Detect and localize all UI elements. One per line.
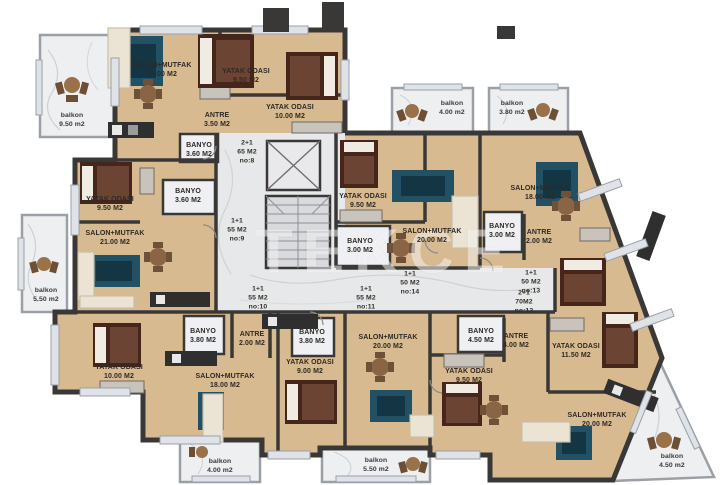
room-label: YATAK ODASI9.00 M2 bbox=[286, 358, 334, 376]
room-label: SALON+MUTFAK20.00 M2 bbox=[568, 411, 627, 429]
room-label: SALON+MUTFAK18.00 M2 bbox=[196, 372, 255, 390]
room-label: YATAK ODASI9.50 M2 bbox=[339, 192, 387, 210]
unit-label: 1+150 M2no:14 bbox=[400, 271, 419, 298]
balcony-label: balkon4.00 m2 bbox=[439, 100, 465, 118]
room-label: SALON+MUTFAK20.00 M2 bbox=[403, 227, 462, 245]
room-label: ANTRE2.00 M2 bbox=[526, 228, 552, 246]
unit-label: 1+155 M2no:11 bbox=[356, 286, 375, 313]
unit-label: 1+155 M2no:9 bbox=[227, 218, 246, 245]
unit-label: 2+165 M2no:8 bbox=[237, 140, 256, 167]
room-label: BANYO3.60 M2 bbox=[175, 187, 201, 205]
room-label: ANTRE2.00 M2 bbox=[239, 330, 265, 348]
elevator bbox=[267, 141, 320, 190]
room-label: BANYO3.80 M2 bbox=[299, 328, 325, 346]
room-label: BANYO3.60 M2 bbox=[186, 141, 212, 159]
balcony-label: balkon3.80 m2 bbox=[499, 100, 525, 118]
unit-label: 1+150 M2no:13 bbox=[521, 270, 540, 297]
room-label: YATAK ODASI9.50 M2 bbox=[445, 367, 493, 385]
balcony-label: balkon5.50 m2 bbox=[33, 287, 59, 305]
room-label: ANTRE4.00 M2 bbox=[503, 332, 529, 350]
room-label: SALON+MUTFAK18.00 M2 bbox=[133, 61, 192, 79]
staircase bbox=[266, 196, 330, 268]
balcony-label: balkon4.50 m2 bbox=[659, 453, 685, 471]
room-label: SALON+MUTFAK20.00 M2 bbox=[359, 333, 418, 351]
room-label: YATAK ODASI9.50 M2 bbox=[222, 67, 270, 85]
balcony-label: balkon4.00 m2 bbox=[207, 458, 233, 476]
balcony-label: balkon9.50 m2 bbox=[59, 112, 85, 130]
room-label: YATAK ODASI10.00 M2 bbox=[266, 103, 314, 121]
room-label: BANYO3.80 M2 bbox=[190, 327, 216, 345]
room-label: SALON+MUTFAK21.00 M2 bbox=[86, 229, 145, 247]
room-label: SALON+MUTFAK18.00 M2 bbox=[511, 184, 570, 202]
floor-plan: TEKCE SALON+MUTFAK18.00 M2 YATAK ODASI9.… bbox=[0, 0, 726, 485]
room-label: BANYO3.00 M2 bbox=[489, 222, 515, 240]
room-label: BANYO3.00 M2 bbox=[347, 237, 373, 255]
balcony-label: balkon5.50 m2 bbox=[363, 457, 389, 475]
room-label: ANTRE3.50 M2 bbox=[204, 111, 230, 129]
room-label: YATAK ODASI10.00 M2 bbox=[95, 363, 143, 381]
room-label: YATAK ODASI9.50 M2 bbox=[86, 195, 134, 213]
room-label: YATAK ODASI11.50 M2 bbox=[552, 342, 600, 360]
unit-label: 1+155 M2no:10 bbox=[248, 286, 267, 313]
room-label: BANYO4.50 M2 bbox=[468, 327, 494, 345]
